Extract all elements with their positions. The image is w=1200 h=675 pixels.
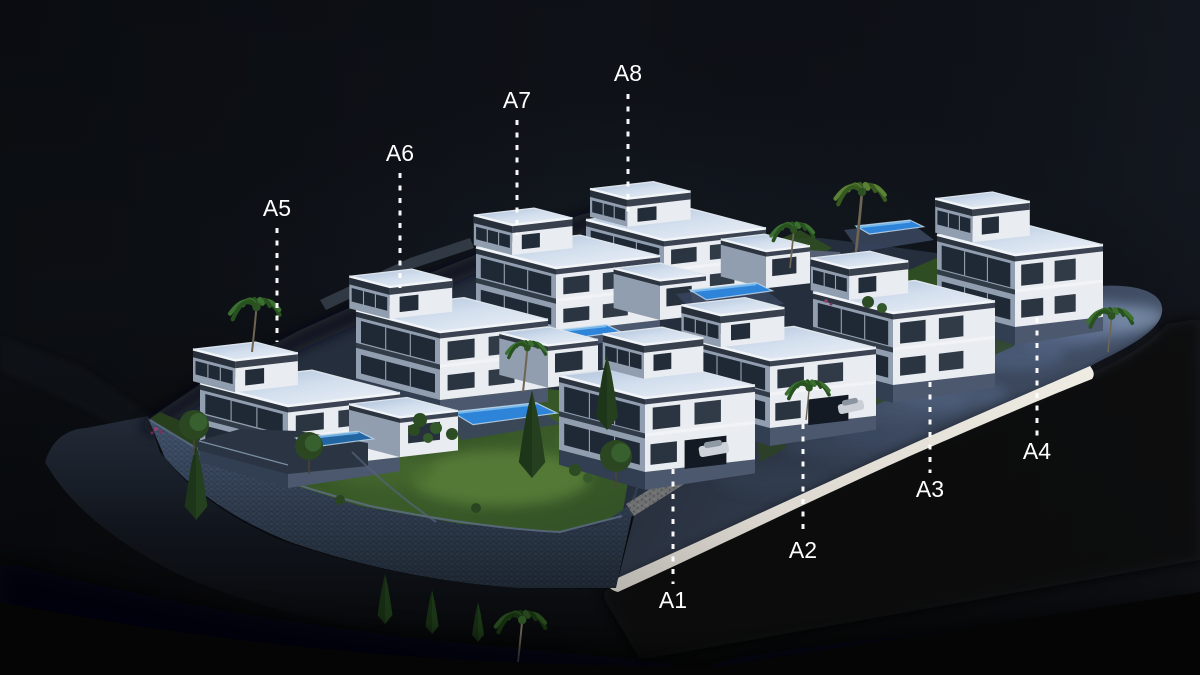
svg-text:A1: A1 (659, 587, 687, 613)
svg-text:A8: A8 (614, 60, 642, 86)
svg-text:A6: A6 (386, 140, 414, 166)
svg-text:A5: A5 (263, 195, 291, 221)
svg-text:A4: A4 (1023, 438, 1051, 464)
svg-text:A7: A7 (503, 87, 531, 113)
svg-text:A3: A3 (916, 476, 944, 502)
svg-text:A2: A2 (789, 537, 817, 563)
